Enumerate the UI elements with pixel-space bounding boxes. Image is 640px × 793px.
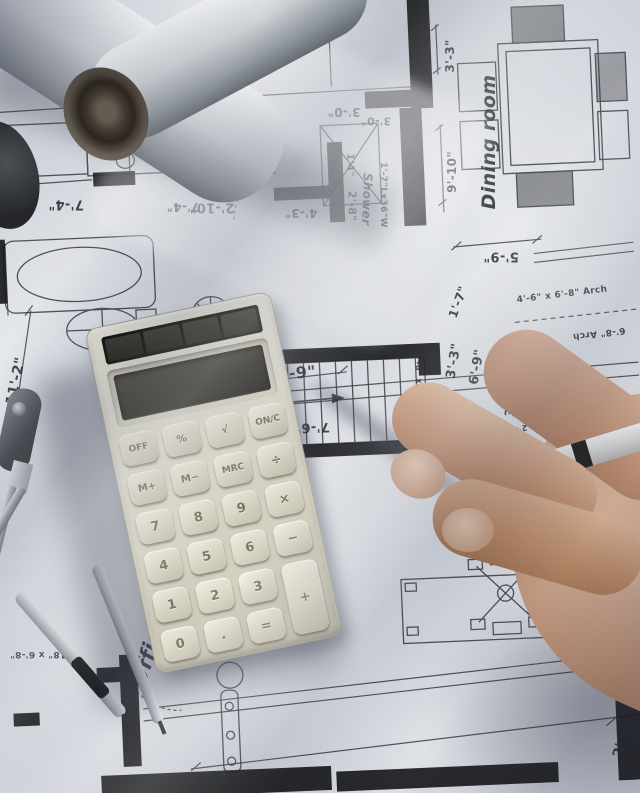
- key-2: 2: [194, 576, 236, 615]
- key-6: 6: [229, 528, 271, 567]
- photo-architect-desk: 8'-6"2'8"x6'8"3'-3"Dining room9'-10"3'-0…: [0, 0, 640, 793]
- key-multiply: ×: [264, 480, 306, 519]
- key-percent: %: [161, 420, 203, 459]
- key-on-clear: ON/C: [247, 401, 289, 440]
- key-plus: +: [280, 558, 330, 636]
- key-decimal: .: [202, 615, 244, 654]
- key-minus: −: [272, 519, 314, 558]
- key-1: 1: [151, 585, 193, 624]
- key-memory-plus: M+: [126, 468, 168, 507]
- key-9: 9: [221, 489, 263, 528]
- door-size-top: 2'8"x6'8": [415, 33, 424, 76]
- key-equals: =: [245, 606, 287, 645]
- dim-3-3-top: 3'-3": [443, 39, 457, 72]
- dim-5-9: 5'-9": [483, 249, 519, 264]
- key-memory-minus: M−: [169, 459, 211, 498]
- key-off: OFF: [118, 429, 160, 468]
- key-4: 4: [143, 546, 185, 585]
- compass-screw: [12, 402, 26, 416]
- key-8: 8: [178, 498, 220, 537]
- key-7: 7: [134, 507, 176, 546]
- thumb-tip: [442, 508, 494, 552]
- calculator-keypad: OFF%√ON/CM+M−MRC÷789×456−123+0.=: [118, 401, 331, 663]
- key-divide: ÷: [255, 440, 297, 479]
- key-3: 3: [237, 567, 279, 606]
- key-sqrt: √: [204, 411, 246, 450]
- key-0: 0: [159, 624, 201, 663]
- key-5: 5: [186, 537, 228, 576]
- key-memory-recall: MRC: [212, 450, 254, 489]
- dim-7-4-a: 7'-4": [48, 197, 84, 212]
